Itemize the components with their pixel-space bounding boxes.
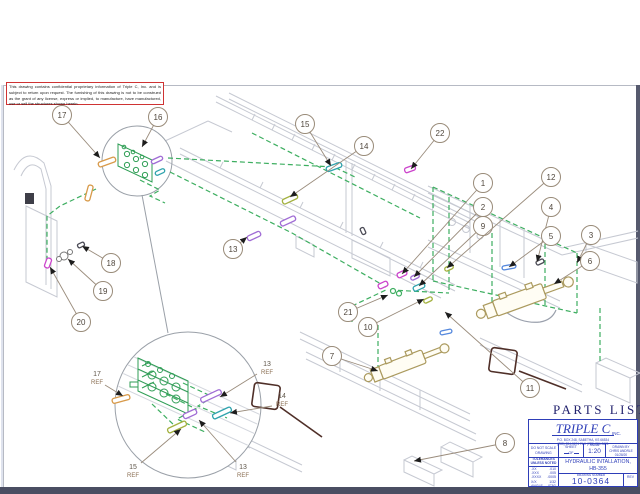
svg-text:5: 5 bbox=[549, 232, 554, 241]
balloon-21: 21 bbox=[339, 295, 389, 322]
svg-text:13: 13 bbox=[229, 245, 238, 254]
svg-text:3: 3 bbox=[589, 231, 594, 240]
svg-text:4: 4 bbox=[549, 203, 554, 212]
svg-text:17: 17 bbox=[93, 371, 101, 378]
svg-text:18: 18 bbox=[107, 259, 116, 268]
company-logo: TRIPLE C bbox=[552, 423, 615, 436]
fitting-purple bbox=[247, 231, 262, 241]
svg-text:9: 9 bbox=[481, 222, 486, 231]
svg-text:12: 12 bbox=[547, 173, 556, 182]
svg-text:15: 15 bbox=[301, 120, 310, 129]
control-valve-assembly bbox=[118, 144, 152, 182]
balloon-12: 12 bbox=[447, 168, 561, 269]
svg-text:6: 6 bbox=[588, 257, 593, 266]
svg-text:REF: REF bbox=[261, 370, 273, 376]
svg-text:19: 19 bbox=[99, 287, 108, 296]
balloon-22: 22 bbox=[411, 124, 450, 170]
fitting-orange bbox=[85, 185, 94, 202]
balloon-20: 20 bbox=[50, 267, 91, 332]
revision-cell: REV bbox=[624, 474, 637, 487]
balloon-17: 17 bbox=[53, 106, 101, 159]
fitting-purple bbox=[410, 273, 420, 280]
svg-text:2: 2 bbox=[481, 203, 486, 212]
balloon-7: 7 bbox=[323, 347, 379, 372]
detail-view-circles bbox=[102, 126, 274, 478]
svg-text:7: 7 bbox=[330, 352, 335, 361]
svg-text:REF: REF bbox=[127, 473, 139, 479]
fitting-ring bbox=[397, 291, 402, 296]
fitting-purple bbox=[151, 156, 164, 165]
svg-text:14: 14 bbox=[360, 142, 369, 151]
fitting-teal bbox=[413, 282, 426, 292]
balloon-2: 2 bbox=[414, 198, 493, 278]
title-block: TRIPLE C INC. P.O. BOX 248, SABETHA, KS … bbox=[528, 419, 638, 487]
svg-text:22: 22 bbox=[436, 129, 445, 138]
balloon-5: 5 bbox=[509, 227, 561, 268]
svg-text:REF: REF bbox=[276, 402, 288, 408]
svg-text:14: 14 bbox=[278, 393, 286, 400]
fitting-dark bbox=[536, 258, 545, 265]
title-block-logo-cell: TRIPLE C INC. P.O. BOX 248, SABETHA, KS … bbox=[529, 420, 637, 444]
svg-text:20: 20 bbox=[77, 318, 86, 327]
drawing-number-cell: DRAWING NUMBER 10-0364 bbox=[559, 474, 624, 487]
balloon-8: 8 bbox=[414, 434, 515, 462]
svg-text:10: 10 bbox=[364, 323, 373, 332]
svg-text:REF: REF bbox=[237, 473, 249, 479]
svg-text:1: 1 bbox=[481, 179, 486, 188]
drawing-title-cell: HYDRAULIC INTALLATION, HB-355 bbox=[559, 458, 637, 474]
fitting-magenta bbox=[404, 165, 416, 173]
company-address-line2: (785) 284-3674 FAX (785) 284-3621 bbox=[529, 442, 637, 446]
tolerances-cell: TOLERANCES UNLESS NOTED .XX.010 .XXX.005… bbox=[529, 458, 559, 486]
drawing-page: 1 2 3 4 5 6 7 8 9 10 11 12 13 14 15 16 1… bbox=[0, 0, 640, 494]
title-block-mid-row: DO NOT SCALE DRAWING SHEET OF SCALE 1:20… bbox=[529, 444, 637, 458]
fitting-orange bbox=[98, 157, 117, 168]
svg-text:21: 21 bbox=[344, 308, 353, 317]
balloon-9: 9 bbox=[419, 217, 493, 287]
valve-cluster-19 bbox=[57, 250, 73, 262]
fitting-olive bbox=[444, 264, 454, 271]
balloon-11: 11 bbox=[445, 312, 540, 398]
svg-text:8: 8 bbox=[503, 439, 508, 448]
confidentiality-notice: This drawing contains confidential propr… bbox=[6, 82, 164, 105]
balloon-13: 13 bbox=[224, 237, 248, 259]
fitting-olive bbox=[423, 296, 433, 303]
svg-text:17: 17 bbox=[58, 111, 67, 120]
fitting-ring bbox=[391, 289, 396, 294]
fitting-blue bbox=[440, 329, 453, 335]
hydraulic-cylinder-left bbox=[361, 336, 451, 385]
title-block-bottom: TOLERANCES UNLESS NOTED .XX.010 .XXX.005… bbox=[529, 458, 637, 486]
svg-text:11: 11 bbox=[526, 384, 535, 393]
fender-connector-block bbox=[25, 193, 34, 204]
svg-text:15: 15 bbox=[129, 464, 137, 471]
balloon-10: 10 bbox=[359, 299, 425, 337]
svg-text:13: 13 bbox=[263, 361, 271, 368]
fitting-teal bbox=[155, 168, 166, 176]
fitting-magenta bbox=[377, 281, 388, 290]
balloon-18: 18 bbox=[82, 246, 121, 273]
fitting-dark bbox=[360, 227, 367, 235]
svg-text:REF: REF bbox=[91, 380, 103, 386]
svg-text:16: 16 bbox=[154, 113, 163, 122]
parts-list-heading: PARTS LIST bbox=[553, 402, 640, 418]
svg-text:13: 13 bbox=[239, 464, 247, 471]
company-inc: INC. bbox=[612, 431, 621, 436]
